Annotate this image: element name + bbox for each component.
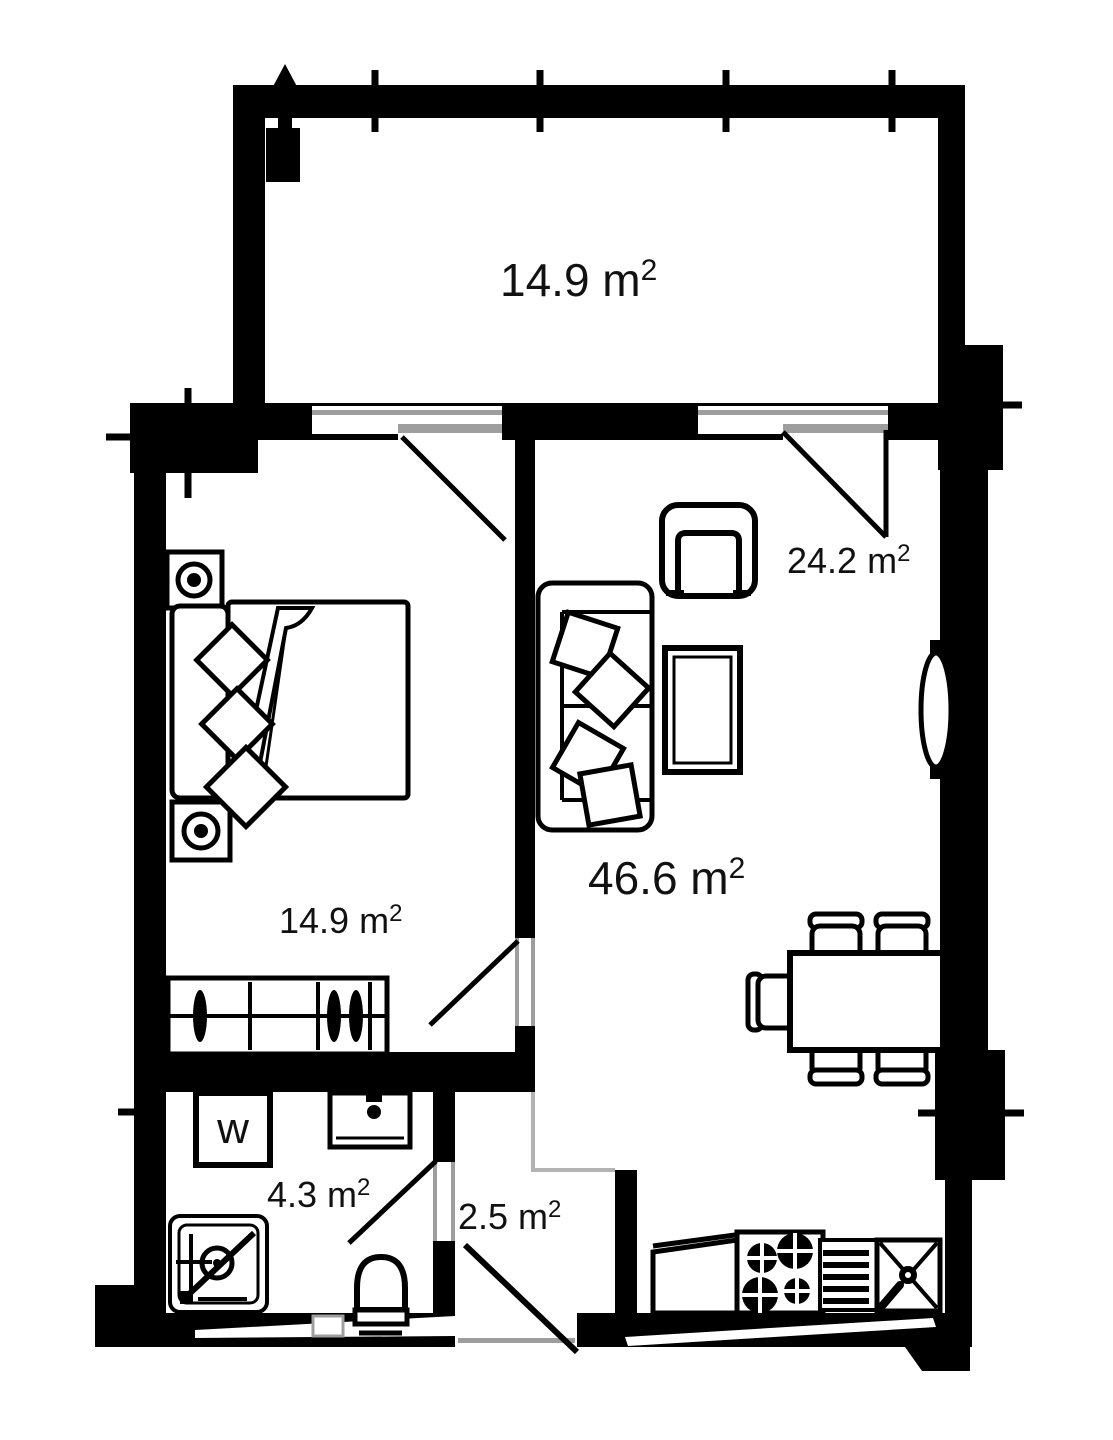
door-jamb [515,938,519,1026]
dining-chair-back [810,1070,862,1084]
radiator [921,653,951,767]
toilet-bowl [357,1257,405,1310]
bathroom-area-label: 4.3 m2 [267,1174,370,1215]
balcony-left-wall [233,85,265,403]
coffee-table-inner [674,657,731,763]
bathroom-right-wall-upper [433,1092,455,1162]
wall-niche [313,1316,343,1336]
balcony-area-label: 14.9 m2 [500,254,657,306]
total-area-label: 46.6 m2 [588,852,745,904]
shower-head [180,1291,193,1304]
dining-set [748,914,943,1084]
hanger-icon [349,990,363,1042]
left-exterior-wall [134,403,166,1347]
hallway-boundary-line [533,1092,615,1170]
sink-faucet-dot [367,1105,381,1119]
bedroom-door-leaf [430,941,518,1025]
lamp-dot [187,573,201,587]
balcony-top-wall [233,85,965,118]
bottom-right-tab [905,1347,970,1371]
entrance-threshold [458,1338,575,1343]
balcony-right-wall [938,85,965,347]
bedroom-bathroom-wall [166,1052,535,1092]
dining-chair-back [876,1070,928,1084]
hanger-icon [327,990,341,1042]
toilet-tank [355,1310,407,1324]
living-window-frame [698,410,888,415]
hanger-icon [193,990,207,1042]
bedroom-window-frame [312,410,502,415]
sofa-pillow [580,765,640,825]
kitchen-counter [653,1240,737,1313]
door-jamb [433,1162,437,1241]
floor-plan: 14.9 m2 24.2 m2 46.6 m2 14.9 m2 4.3 m2 2… [0,0,1113,1440]
living-balcony-door-leaf [783,432,886,537]
sink-drain-dot [905,1272,911,1278]
door-jamb [451,1162,455,1241]
hallway-area-label: 2.5 m2 [458,1196,561,1237]
dining-table [790,953,943,1050]
bedroom-furniture [167,552,408,1054]
living-area-label: 24.2 m2 [787,540,910,581]
balcony-drain-arrow [266,64,301,182]
drain-block [266,128,300,182]
living-door-threshold [783,424,888,433]
bedroom-area-label: 14.9 m2 [279,900,402,941]
bedroom-door-threshold [398,424,502,433]
door-jamb [531,938,535,1026]
kitchen [653,1232,940,1313]
lamp-dot [194,824,208,838]
bedroom-balcony-door-leaf [402,437,505,540]
sink-faucet-base [366,1090,382,1102]
washing-machine-label: w [216,1104,249,1153]
right-lower-column [935,1050,1005,1180]
